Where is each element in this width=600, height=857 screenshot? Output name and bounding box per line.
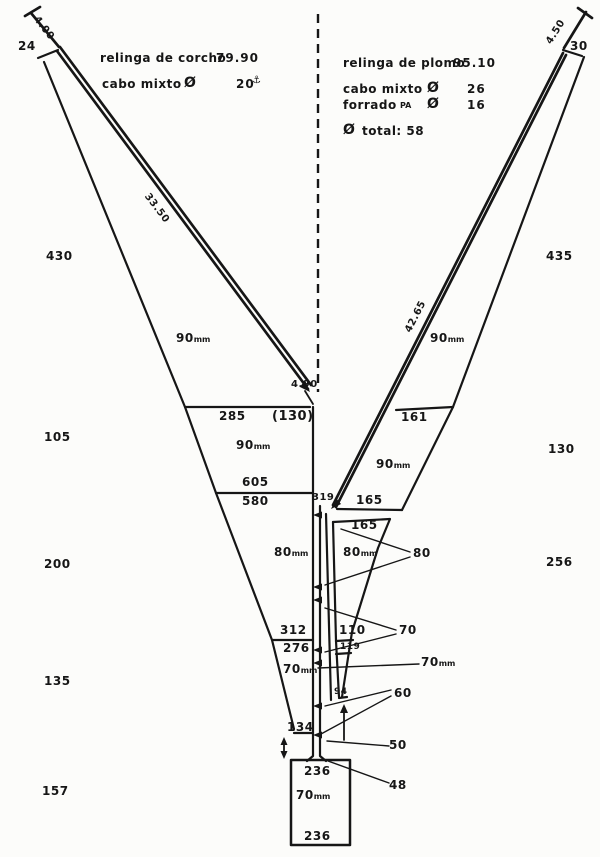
selvedge-tick-7 [313,732,322,739]
right-belly-mesh-value: 80 [343,545,361,559]
diameter-symbol-right-1: Ø [427,81,439,95]
rope-to-corner-link [305,391,313,404]
anchor-icon: ⚓ [252,76,261,86]
corkline-label: relinga de corcho [100,52,226,64]
leader-48 [328,761,389,783]
right-belly-left-edge [333,522,339,697]
right-wing-bottom-width: 165 [356,494,383,506]
leader-label-80: 80 [413,547,431,559]
right-wing-cross-width: 161 [401,411,428,423]
diameter-symbol-right-2: Ø [427,97,439,111]
right-belly-mesh-size: 80mm [343,546,377,558]
leadline-value: 95.10 [453,57,496,69]
left-wing-mesh-size: 90mm [176,332,210,344]
right-belly-cross2-width: 119 [340,643,360,652]
count-right-belly: 256 [546,556,573,568]
right-wing-mesh-upper-size: 90mm [430,332,464,344]
codend-mesh-size: 70mm [296,789,330,801]
cabo-mixto-right-value: 26 [467,83,486,95]
corkline-value: 79.90 [216,52,259,64]
leader-60-b [321,696,391,734]
count-left-wing: 430 [46,250,73,262]
selvedge-tick-1 [313,512,322,519]
cabo-mixto-left-label: cabo mixto [102,78,182,90]
selvedge-tick-6 [313,703,322,710]
right-belly-mesh-unit: mm [361,549,378,558]
square-depth: (130) [272,410,314,423]
forrado-value: 16 [467,99,486,111]
codend-mesh-value: 70 [296,788,314,802]
selvedge-line-1 [307,407,313,761]
leadline-label: relinga de plomo [343,57,465,69]
count-left-wing-tip: 24 [18,40,36,52]
left-wing-mesh-value: 90 [176,331,194,345]
selvedge-tick-2 [313,584,322,591]
count-left-square: 105 [44,431,71,443]
square-mesh-value: 90 [236,438,254,452]
codend-mesh-unit: mm [314,792,331,801]
forrado-label: forrado [343,99,397,111]
belly2-mesh-value: 70 [283,662,301,676]
cabo-mixto-right-label: cabo mixto [343,83,423,95]
right-belly-cross1-width: 110 [339,624,366,636]
right-wing-mesh-upper-value: 90 [430,331,448,345]
right-bridle-tick [578,8,592,18]
forrado-material: PA [400,102,411,110]
selvedge-tick-4 [313,647,322,654]
right-footrope-b [336,55,566,507]
leader-50 [327,741,389,746]
right-wing-bottom-seam [337,509,402,510]
right-belly-bottom-edge [339,697,347,698]
codend-top-width: 236 [304,765,331,777]
right-belly-seam-110 [336,640,353,641]
left-wing-mesh-unit: mm [194,335,211,344]
count-right-wing-tip: 30 [570,40,588,52]
right-belly-seam-119 [336,653,351,654]
leader-label-48: 48 [389,779,407,791]
codend-bottom-width: 236 [304,830,331,842]
left-wing-tip-edge [38,50,58,58]
left-body-outline [44,62,294,729]
leader-label-60: 60 [394,687,412,699]
count-right-wing: 435 [546,250,573,262]
selvedge-line-3 [326,514,331,700]
right-footrope-a [333,53,563,505]
leader-70mm [318,664,419,668]
right-wing-mesh-upper-unit: mm [448,335,465,344]
selvedge-top-count: 319 [312,493,334,503]
right-belly-bottom-width: 94 [334,688,348,697]
belly2-mesh-size: 70mm [283,663,317,675]
belly2-top-width: 276 [283,642,310,654]
belly2-bottom-width: 134 [287,721,314,733]
count-right-square: 130 [548,443,575,455]
leader-label-70: 70 [399,624,417,636]
right-belly-top-width: 165 [351,519,378,531]
leader-70mm-value: 70 [421,655,439,669]
belly1-bottom-width: 312 [280,624,307,636]
belly1-mesh-size: 80mm [274,546,308,558]
belly1-top-width: 580 [242,495,269,507]
count-left-belly1: 200 [44,558,71,570]
selvedge-tick-3 [313,597,322,604]
diameter-total-label: total: 58 [362,125,424,137]
selvedge-line-2 [320,506,326,761]
diameter-symbol-left: Ø [184,76,196,90]
leader-label-70mm: 70mm [421,656,455,668]
right-wing-mesh-lower-unit: mm [394,461,411,470]
belly1-mesh-unit: mm [292,549,309,558]
right-wing-mesh-lower-value: 90 [376,457,394,471]
leader-70mm-unit: mm [439,659,456,668]
count-left-codend: 157 [42,785,69,797]
square-mesh-unit: mm [254,442,271,451]
left-headrope-end-length: 4.90 [291,380,318,390]
diameter-symbol-total: Ø [343,123,355,137]
leader-label-50: 50 [389,739,407,751]
right-wing-mesh-lower-size: 90mm [376,458,410,470]
count-left-belly2: 135 [44,675,71,687]
belly1-mesh-value: 80 [274,545,292,559]
net-plan-diagram: relinga de corcho 79.90 cabo mixto Ø 20 … [0,0,600,857]
belly2-mesh-unit: mm [301,666,318,675]
arrowheads [281,380,349,759]
square-top-width: 285 [219,410,246,422]
square-bottom-width: 605 [242,476,269,488]
square-mesh-size: 90mm [236,439,270,451]
